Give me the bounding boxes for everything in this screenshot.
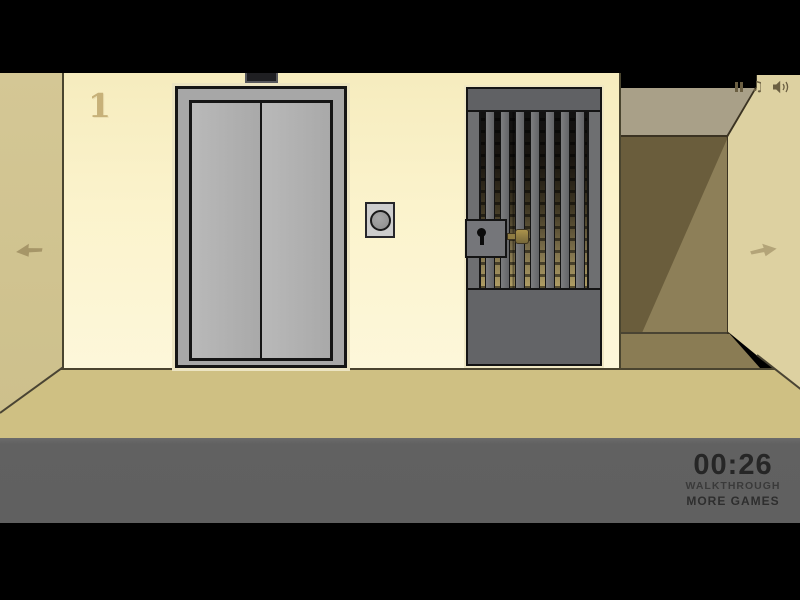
more-games-link[interactable]: MORE GAMES bbox=[660, 494, 800, 509]
elevator-doors[interactable] bbox=[189, 100, 333, 361]
gate-bottom-panel bbox=[466, 288, 602, 366]
inserted-key[interactable] bbox=[507, 229, 527, 242]
speaker-icon[interactable] bbox=[772, 80, 790, 94]
elevator-call-panel bbox=[365, 202, 395, 238]
floor-number-label: 1 bbox=[88, 86, 111, 125]
right-side-wall bbox=[728, 75, 800, 390]
corridor-shadow-shade bbox=[621, 137, 728, 332]
gate-bar bbox=[500, 109, 510, 290]
nav-arrow-right[interactable] bbox=[746, 236, 781, 266]
hud-menu: 00:26 WALKTHROUGH MORE GAMES bbox=[660, 450, 800, 509]
game-stage: 1 bbox=[0, 0, 800, 600]
audio-controls: ♫ bbox=[735, 80, 790, 94]
gate-top-rail bbox=[466, 87, 602, 112]
gate-bar bbox=[545, 109, 555, 290]
arrow-right-icon bbox=[747, 245, 781, 265]
gate-lock-box[interactable] bbox=[465, 219, 507, 258]
nav-arrow-left[interactable] bbox=[12, 236, 47, 267]
gate-bar bbox=[530, 109, 540, 290]
gate-bar bbox=[515, 109, 525, 290]
gate-bar bbox=[575, 109, 585, 290]
gate-bar bbox=[485, 109, 495, 290]
letterbox-bottom bbox=[0, 523, 800, 600]
pause-icon[interactable] bbox=[735, 82, 743, 92]
music-note-icon[interactable]: ♫ bbox=[751, 82, 764, 92]
elevator-left-door[interactable] bbox=[192, 103, 260, 358]
elevator-call-button[interactable] bbox=[370, 210, 391, 231]
letterbox-top bbox=[0, 0, 800, 73]
gate-bar bbox=[560, 109, 570, 290]
corridor-opening bbox=[621, 137, 728, 332]
arrow-left-icon bbox=[14, 245, 48, 266]
elevator-right-door[interactable] bbox=[262, 103, 330, 358]
key-bow bbox=[515, 229, 529, 244]
keyhole-stem bbox=[480, 235, 484, 245]
floor bbox=[0, 368, 800, 438]
timer-display: 00:26 bbox=[660, 450, 800, 480]
walkthrough-link[interactable]: WALKTHROUGH bbox=[660, 480, 800, 493]
corridor-ceiling-edge bbox=[621, 135, 729, 137]
